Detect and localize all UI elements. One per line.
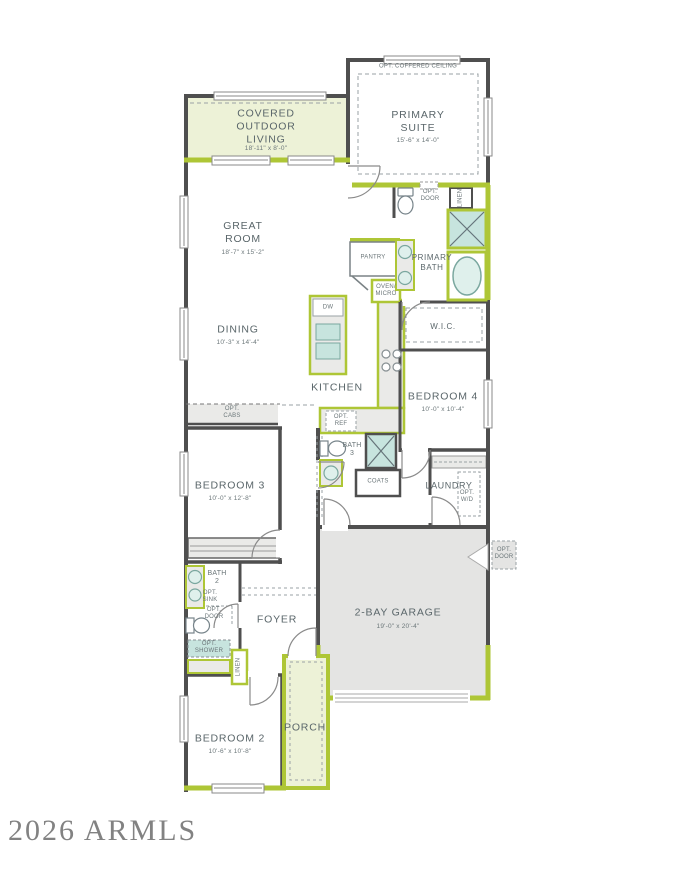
sink-bath2 — [189, 571, 202, 584]
dining-label: DINING — [217, 323, 259, 336]
dishwasher-label: DW — [323, 305, 333, 312]
armls-watermark: 2026 ARMLS — [8, 812, 197, 850]
door-bedroom2 — [250, 677, 278, 705]
toilet-bath3 — [320, 441, 328, 456]
bedroom3-dims: 10'-0" x 12'-8" — [209, 495, 252, 503]
pantry-label: PANTRY — [361, 255, 386, 262]
opt-cabs-label: OPT. CABS — [223, 406, 240, 420]
opt-coffered-ceiling-label: OPT. COFFERED CEILING — [379, 64, 457, 71]
covered-outdoor-living-dims: 18'-11" x 8'-0" — [245, 145, 288, 153]
opt-door-garage-label: OPT. DOOR — [495, 547, 514, 561]
opt-shower-label: OPT. SHOWER — [195, 641, 223, 655]
bedroom2-label: BEDROOM 2 — [195, 732, 265, 745]
floor-plan-page: OPT. COFFERED CEILING PRIMARY SUITE 15'-… — [0, 0, 676, 876]
toilet-primary — [398, 188, 413, 196]
great-room-label: GREAT ROOM — [223, 220, 262, 246]
floor-plan-drawing — [0, 0, 676, 876]
kitchen-sink-1 — [316, 324, 340, 340]
door-laundry — [432, 497, 460, 525]
opt-wd-label: OPT. W/D — [460, 490, 474, 504]
dining-dims: 10'-3" x 14'-4" — [217, 339, 260, 347]
door-bedroom4 — [402, 450, 430, 478]
sink-primary-1 — [399, 246, 412, 259]
bedroom4-label: BEDROOM 4 — [408, 390, 478, 403]
coats-label: COATS — [367, 479, 388, 486]
door-wic — [402, 302, 430, 330]
oven-micro-label: OVEN/ MICRO — [376, 284, 397, 298]
door-front — [288, 628, 316, 656]
bath2-label: BATH 2 — [208, 570, 227, 586]
porch-label: PORCH — [284, 721, 326, 734]
covered-outdoor-living-label: COVERED OUTDOOR LIVING — [236, 107, 295, 146]
primary-suite-label: PRIMARY SUITE — [391, 109, 444, 135]
kitchen-label: KITCHEN — [311, 381, 363, 394]
opt-door-primary-label: OPT. DOOR — [421, 189, 440, 203]
linen-hall-label: LINEN — [236, 658, 243, 677]
bedroom2-dims: 10'-6" x 10'-8" — [209, 748, 252, 756]
wic-label: W.I.C. — [430, 322, 455, 332]
primary-bath-label: PRIMARY BATH — [412, 253, 453, 273]
opt-ref-label: OPT. REF — [334, 414, 348, 428]
bedroom4-dims: 10'-0" x 10'-4" — [422, 406, 465, 414]
kitchen-sink-2 — [316, 343, 340, 359]
primary-suite-dims: 15'-6" x 14'-0" — [397, 137, 440, 145]
garage-label: 2-BAY GARAGE — [355, 606, 442, 619]
door-garage-entry — [324, 499, 350, 525]
garage-dims: 19'-0" x 20'-4" — [377, 623, 420, 631]
foyer-label: FOYER — [257, 613, 297, 626]
linen-primary-label: LINEN — [458, 189, 465, 208]
opt-sink-label: OPT. SINK — [203, 590, 218, 604]
opt-door-bath2-label: OPT. DOOR — [205, 607, 224, 621]
great-room-dims: 18'-7" x 15'-2" — [222, 249, 265, 257]
bedroom3-label: BEDROOM 3 — [195, 479, 265, 492]
toilet-bath2 — [186, 618, 194, 633]
sink-bath2-optional — [189, 589, 201, 601]
bath3-label: BATH 3 — [343, 442, 362, 458]
sink-primary-2 — [399, 272, 412, 285]
sink-bath3 — [324, 466, 338, 480]
